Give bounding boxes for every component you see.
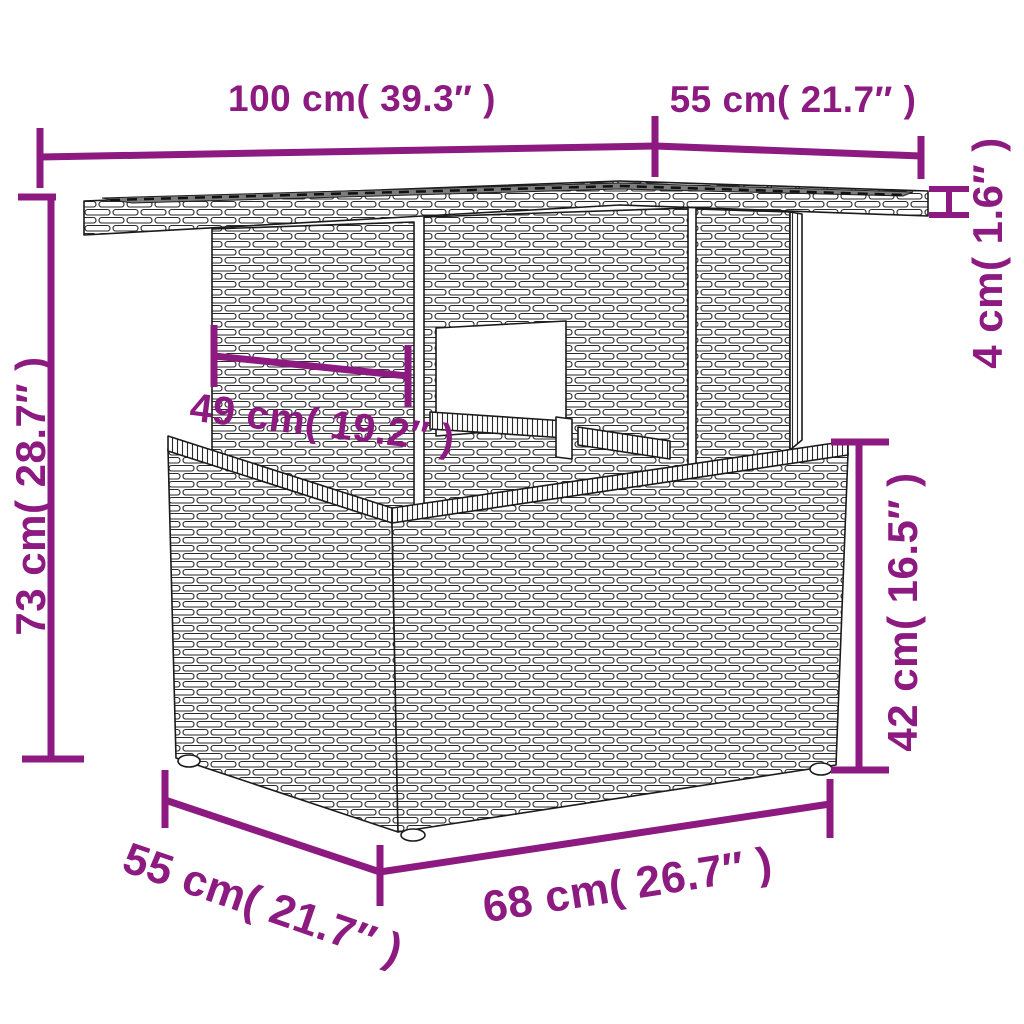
table-drawing [84,181,928,841]
label-overall-height: 73 cm( 28.7″ ) [7,356,54,635]
label-tabletop-depth: 55 cm( 21.7″ ) [670,79,917,120]
foot-corner [401,829,425,841]
foot-left [178,755,200,767]
foot-right [810,763,832,775]
dim-tabletop-length-line [40,146,655,157]
label-base-height: 42 cm( 16.5″ ) [879,472,926,751]
base-rail-post [556,417,572,459]
label-base-depth: 55 cm( 21.7″ ) [117,834,409,975]
label-tabletop-length: 100 cm( 39.3″ ) [228,78,496,119]
pedestal-column-edge-roll [790,212,802,450]
diagram-canvas: 100 cm( 39.3″ ) 55 cm( 21.7″ ) 4 cm( 1.6… [0,0,1024,1024]
label-tabletop-thickness: 4 cm( 1.6″ ) [964,137,1011,369]
pedestal-right-column [696,209,790,465]
dimension-diagram: 100 cm( 39.3″ ) 55 cm( 21.7″ ) 4 cm( 1.6… [0,0,1024,1024]
dim-tabletop-depth-line [655,146,921,156]
